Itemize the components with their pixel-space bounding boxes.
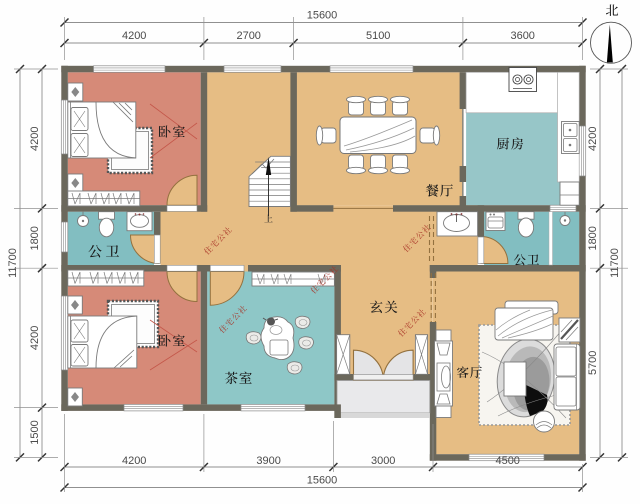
svg-text:11700: 11700	[7, 248, 19, 278]
svg-text:3900: 3900	[256, 455, 280, 467]
svg-text:15600: 15600	[307, 10, 338, 22]
svg-text:4200: 4200	[29, 126, 41, 150]
svg-text:4200: 4200	[122, 455, 146, 467]
svg-text:15600: 15600	[307, 475, 338, 487]
svg-text:1800: 1800	[29, 226, 41, 250]
svg-text:11700: 11700	[609, 248, 621, 278]
svg-text:3000: 3000	[371, 455, 395, 467]
svg-text:1800: 1800	[587, 226, 599, 250]
svg-text:3600: 3600	[510, 30, 534, 42]
svg-text:5100: 5100	[366, 30, 390, 42]
svg-text:4200: 4200	[29, 326, 41, 350]
svg-text:4500: 4500	[495, 455, 519, 467]
svg-text:4200: 4200	[122, 30, 146, 42]
svg-text:5700: 5700	[587, 351, 599, 375]
svg-text:1500: 1500	[29, 420, 41, 444]
svg-text:2700: 2700	[236, 30, 260, 42]
svg-text:4200: 4200	[587, 126, 599, 150]
